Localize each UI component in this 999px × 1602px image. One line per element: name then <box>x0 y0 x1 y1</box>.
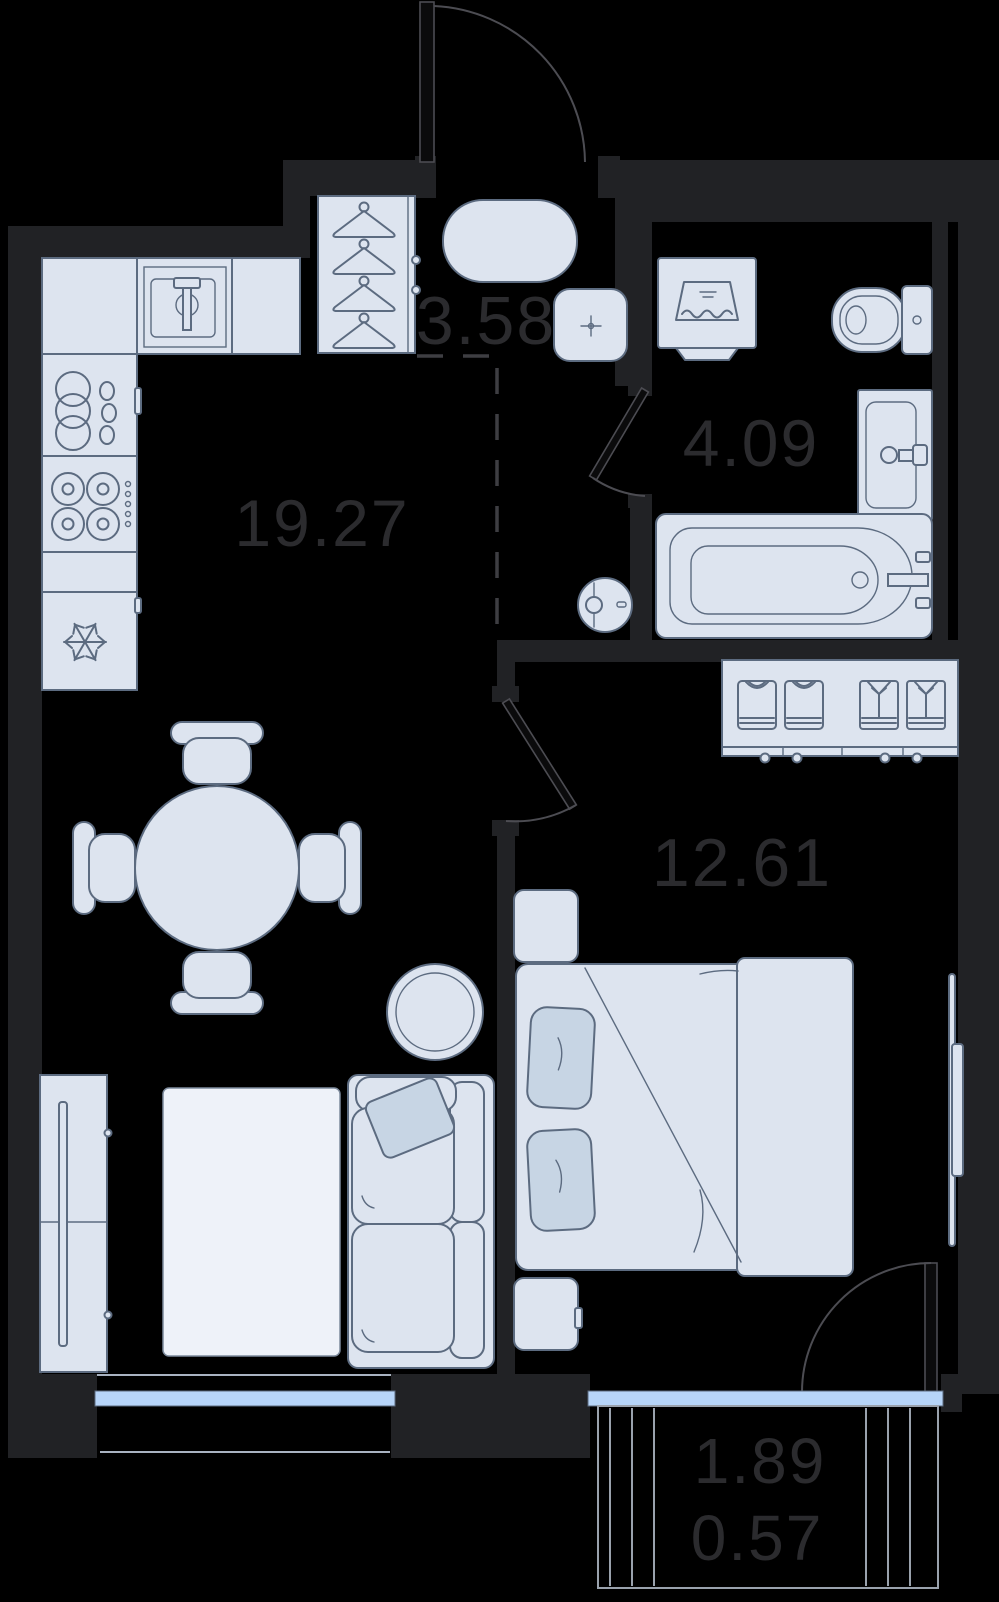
dining-chair <box>171 952 263 1014</box>
wall-right-outer <box>958 222 999 1394</box>
living-area <box>40 722 494 1372</box>
dining-chair <box>73 822 135 914</box>
kitchen-area <box>42 258 300 690</box>
robot-vacuum <box>578 578 632 632</box>
bathtub <box>656 514 932 638</box>
bedroom-door-post <box>492 820 519 836</box>
tv-console <box>40 1075 112 1372</box>
bathroom-area-label: 4.09 <box>683 406 819 480</box>
balcony-reduced-area-label: 0.57 <box>691 1502 824 1574</box>
stool <box>554 289 627 361</box>
nightstand <box>514 1278 582 1350</box>
balcony-area-label: 1.89 <box>694 1425 827 1497</box>
wall-bottom-right-block <box>941 1374 962 1412</box>
wall-kitchen-top <box>8 226 300 258</box>
dining-table <box>135 786 299 950</box>
stove <box>42 456 137 552</box>
wall-bedroom-left-lower <box>497 836 515 1376</box>
kitchen-counter <box>232 258 300 354</box>
wall-bottom-mid-block <box>391 1374 590 1458</box>
kitchen-counter <box>42 258 137 354</box>
rug <box>163 1088 340 1356</box>
hallway-area <box>318 196 632 632</box>
nightstand <box>514 890 578 962</box>
floor-plan-canvas: 19.27 3.58 4.09 12.61 1.89 0.57 <box>0 0 999 1602</box>
wardrobe-foot <box>793 754 802 763</box>
bedroom-area-label: 12.61 <box>652 825 832 901</box>
wardrobe-foot <box>761 754 770 763</box>
dining-chair <box>299 822 361 914</box>
sofa-seat-cushion <box>352 1224 454 1352</box>
floor-plan: 19.27 3.58 4.09 12.61 1.89 0.57 <box>0 0 999 1602</box>
wall-bath-inner-right <box>932 222 948 640</box>
kitchen-counter <box>42 552 137 592</box>
bedroom-area <box>514 660 963 1350</box>
dining-chair <box>171 722 263 784</box>
tv-screen <box>59 1102 67 1346</box>
pouf <box>443 200 577 282</box>
wall-bedroom-top <box>497 640 999 662</box>
bedroom-wardrobe <box>722 660 958 763</box>
wall-bath-left-lower <box>630 498 652 662</box>
wall-bottom-left-block <box>8 1374 97 1458</box>
shirt-icon <box>860 681 898 729</box>
balcony-door <box>802 1263 937 1392</box>
bedroom-door <box>503 699 577 821</box>
bed-pillow <box>526 1006 595 1109</box>
wardrobe-foot <box>881 754 890 763</box>
entry-door-post <box>598 156 620 198</box>
bed-blanket <box>737 958 853 1276</box>
bathroom-sink <box>858 390 932 520</box>
wardrobe-knob <box>412 256 420 264</box>
wall-left-outer <box>8 226 42 1458</box>
tshirt-icon <box>785 681 823 729</box>
bed-pillow <box>526 1128 595 1231</box>
washing-machine <box>658 258 756 360</box>
sofa <box>348 1075 494 1368</box>
shirt-icon <box>907 681 945 729</box>
dining-table-set <box>73 722 361 1014</box>
balcony-glazing <box>588 1391 943 1406</box>
bathroom-door <box>590 388 649 496</box>
zone-divider-dashed-line <box>417 356 497 640</box>
cabinet-handle <box>135 388 141 414</box>
bedroom-door-post <box>492 686 519 702</box>
kitchen-living-area-label: 19.27 <box>234 486 409 560</box>
wall-bedroom-left-upper <box>497 662 515 688</box>
bed <box>516 958 853 1276</box>
wall-entry-left <box>283 160 436 196</box>
side-table <box>387 964 483 1060</box>
wardrobe-foot <box>913 754 922 763</box>
toilet <box>832 286 932 354</box>
entry-door <box>420 2 585 162</box>
hall-wardrobe <box>318 196 420 353</box>
tshirt-icon <box>738 681 776 729</box>
hallway-area-label: 3.58 <box>416 283 556 359</box>
fridge-handle <box>135 598 141 613</box>
living-room-window <box>95 1391 395 1406</box>
wall-bathroom-top <box>648 160 999 222</box>
sofa-back-cushion <box>450 1222 484 1358</box>
